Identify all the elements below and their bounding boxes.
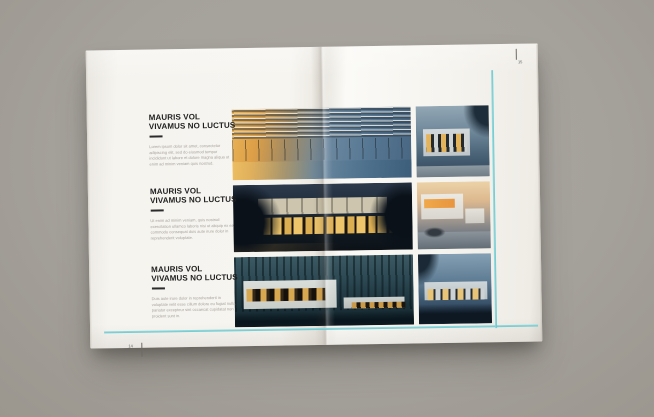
single-story-house-dusk-photo	[418, 253, 492, 324]
section-heading: MAURIS VOLVIVAMUS NO LUCTUS	[150, 186, 238, 205]
section-block-1: MAURIS VOLVIVAMUS NO LUCTUS Lorem ipsum …	[149, 112, 238, 167]
night-house-lit-windows-photo	[233, 182, 413, 252]
section-body-text: Ut enim ad minim veniam, quis nostrud ex…	[150, 217, 234, 241]
villa-terrace-dusk-photo	[232, 106, 412, 180]
heading-underline-rule	[151, 209, 164, 211]
heading-line-2: VIVAMUS NO LUCTUS	[149, 121, 236, 131]
right-page-number: 15	[518, 60, 523, 65]
forest-white-house-photo	[234, 254, 414, 327]
section-body-text: Lorem ipsum dolor sit amet, consectetur …	[149, 143, 233, 167]
right-page-edge	[536, 44, 543, 340]
heading-line-2: VIVAMUS NO LUCTUS	[150, 195, 237, 205]
left-page-edge	[86, 52, 93, 348]
heading-underline-rule	[150, 135, 163, 137]
section-heading: MAURIS VOLVIVAMUS NO LUCTUS	[151, 264, 239, 283]
house-with-car-dusk-photo	[417, 181, 491, 249]
cubic-house-dusk-photo	[416, 105, 490, 177]
section-heading: MAURIS VOLVIVAMUS NO LUCTUS	[149, 112, 237, 131]
right-page-number-tick	[516, 49, 517, 60]
section-block-2: MAURIS VOLVIVAMUS NO LUCTUS Ut enim ad m…	[150, 186, 239, 241]
magazine-spread: MAURIS VOLVIVAMUS NO LUCTUS Lorem ipsum …	[86, 43, 543, 348]
left-page-number: 14	[128, 344, 133, 349]
heading-underline-rule	[152, 287, 165, 289]
background-surface: MAURIS VOLVIVAMUS NO LUCTUS Lorem ipsum …	[0, 0, 654, 417]
right-margin-guide-line	[491, 70, 497, 328]
section-body-text: Duis aute irure dolor in reprehenderit i…	[152, 295, 236, 319]
section-block-3: MAURIS VOLVIVAMUS NO LUCTUS Duis aute ir…	[151, 264, 240, 319]
left-page-number-tick	[141, 343, 142, 357]
heading-line-2: VIVAMUS NO LUCTUS	[151, 273, 238, 283]
